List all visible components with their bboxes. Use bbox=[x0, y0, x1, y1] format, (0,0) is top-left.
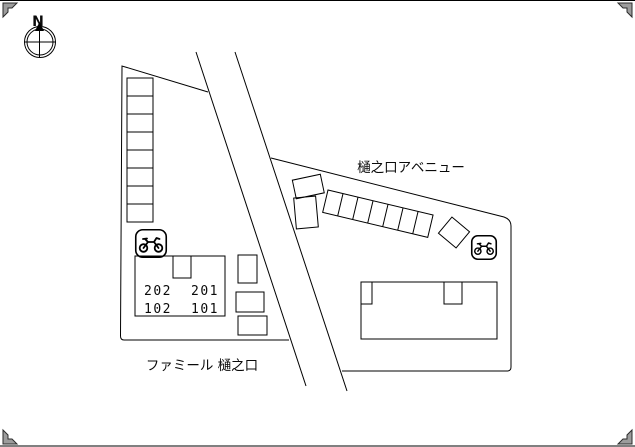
parking-divider bbox=[383, 204, 388, 226]
side-parking-space-1 bbox=[238, 255, 257, 283]
building-name-label: ファミール 樋之口 bbox=[146, 358, 258, 374]
site-plan-canvas: N 202 201 102 101 bbox=[0, 0, 635, 447]
diagonal-parking-strip bbox=[323, 190, 433, 237]
compass-rose: N bbox=[25, 14, 56, 58]
diagonal-parking-dividers bbox=[338, 194, 418, 234]
parking-divider bbox=[353, 197, 358, 219]
motorcycle-icon bbox=[475, 243, 494, 254]
east-building-notch-east bbox=[444, 282, 462, 304]
motorcycle-icon-frame bbox=[472, 236, 497, 260]
corner-mark-top-left-icon bbox=[3, 3, 17, 17]
parking-divider bbox=[338, 194, 343, 216]
corner-mark-top-right-icon bbox=[618, 3, 632, 17]
east-building-outline bbox=[361, 282, 497, 339]
room-label-102: 102 bbox=[144, 302, 172, 317]
road-edge-west-line bbox=[196, 52, 306, 386]
room-label-101: 101 bbox=[191, 302, 219, 317]
detached-parking-space-lower bbox=[294, 196, 319, 229]
detached-parking-space-east bbox=[438, 217, 469, 248]
room-label-201: 201 bbox=[191, 284, 219, 299]
diagonal-parking-strip-outline bbox=[323, 190, 433, 237]
motorcycle-icon bbox=[140, 238, 163, 252]
site-plan-drawing: N 202 201 102 101 bbox=[0, 0, 635, 447]
corner-mark-bottom-left-icon bbox=[3, 430, 17, 444]
parking-divider bbox=[398, 208, 403, 230]
motorcycle-parking-icon-west bbox=[136, 230, 167, 258]
room-label-202: 202 bbox=[144, 284, 172, 299]
east-building-notch-west bbox=[361, 282, 372, 304]
side-parking-space-2 bbox=[236, 292, 264, 312]
parking-divider bbox=[368, 201, 373, 223]
main-building-entrance-notch bbox=[173, 256, 191, 278]
corner-mark-bottom-right-icon bbox=[618, 430, 632, 444]
side-parking-space-3 bbox=[238, 316, 267, 335]
motorcycle-icon-frame bbox=[136, 230, 167, 258]
avenue-label: 樋之口アベニュー bbox=[357, 160, 465, 176]
detached-parking-space-upper bbox=[292, 174, 324, 199]
motorcycle-parking-icon-east bbox=[472, 236, 497, 260]
parking-divider bbox=[413, 211, 418, 233]
west-parking-dividers bbox=[127, 96, 153, 204]
